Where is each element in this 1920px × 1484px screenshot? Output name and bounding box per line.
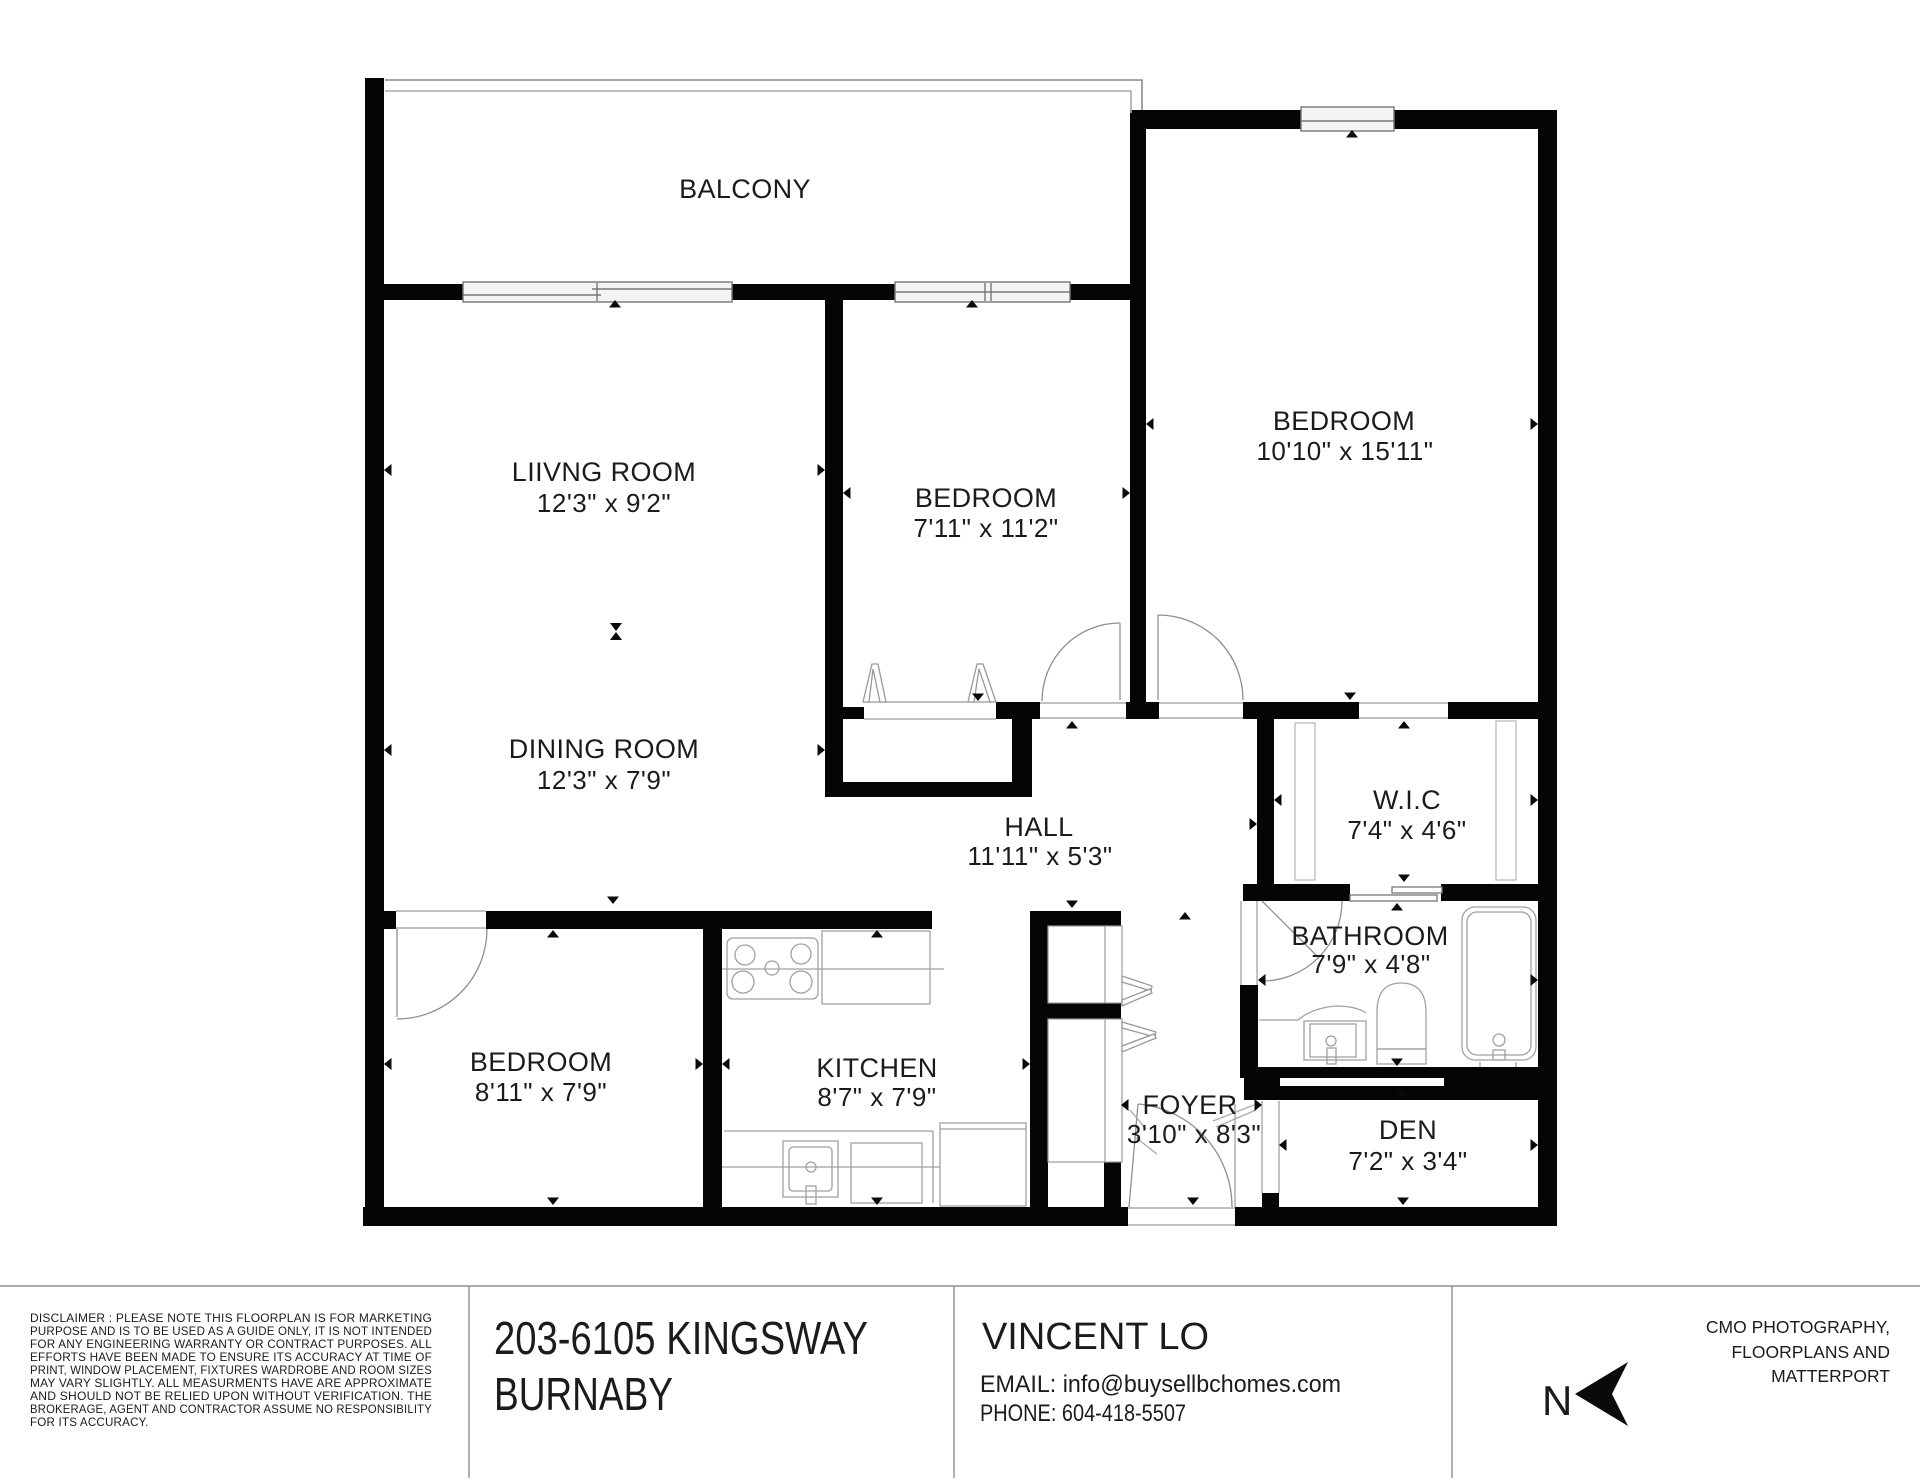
svg-text:HALL: HALL <box>1004 812 1073 842</box>
svg-text:LIIVNG ROOM: LIIVNG ROOM <box>512 457 696 487</box>
svg-text:3'10" x 8'3": 3'10" x 8'3" <box>1127 1119 1261 1149</box>
svg-text:W.I.C: W.I.C <box>1373 785 1441 815</box>
svg-text:CMO PHOTOGRAPHY,: CMO PHOTOGRAPHY, <box>1706 1317 1890 1337</box>
svg-text:11'11" x 5'3": 11'11" x 5'3" <box>967 841 1112 871</box>
svg-text:7'11" x 11'2": 7'11" x 11'2" <box>913 513 1058 543</box>
svg-text:10'10" x 15'11": 10'10" x 15'11" <box>1256 436 1433 466</box>
svg-text:BEDROOM: BEDROOM <box>1273 406 1415 436</box>
svg-text:EMAIL: info@buysellbchomes.co: EMAIL: info@buysellbchomes.com <box>980 1371 1341 1398</box>
svg-text:MATTERPORT: MATTERPORT <box>1771 1366 1890 1386</box>
svg-text:7'2" x 3'4": 7'2" x 3'4" <box>1348 1146 1467 1176</box>
svg-text:MAY VARY SLIGHTLY. ALL MEASUR: MAY VARY SLIGHTLY. ALL MEASURMENTS HAVE … <box>30 1377 432 1390</box>
svg-text:BROKERAGE, AGENT AND CONTRACTO: BROKERAGE, AGENT AND CONTRACTOR ASSUME N… <box>30 1403 432 1416</box>
svg-text:BALCONY: BALCONY <box>679 174 811 204</box>
svg-text:12'3" x 7'9": 12'3" x 7'9" <box>537 765 671 795</box>
svg-text:7'4" x 4'6": 7'4" x 4'6" <box>1347 815 1466 845</box>
svg-text:BEDROOM: BEDROOM <box>915 483 1057 513</box>
svg-text:PURPOSE AND IS TO BE USED AS A: PURPOSE AND IS TO BE USED AS A GUIDE ONL… <box>30 1325 432 1338</box>
svg-text:DINING ROOM: DINING ROOM <box>509 734 699 764</box>
svg-text:8'7" x 7'9": 8'7" x 7'9" <box>817 1082 936 1112</box>
svg-text:BURNABY: BURNABY <box>494 1368 673 1420</box>
svg-text:FOR ANY ENGINEERING WARRANTY O: FOR ANY ENGINEERING WARRANTY OR CONTRACT… <box>30 1338 432 1351</box>
svg-text:KITCHEN: KITCHEN <box>816 1053 937 1083</box>
svg-text:DEN: DEN <box>1379 1115 1437 1145</box>
svg-text:BEDROOM: BEDROOM <box>470 1047 612 1077</box>
svg-text:FOYER: FOYER <box>1142 1090 1237 1120</box>
svg-text:EFFORTS HAVE BEEN MADE TO ENSU: EFFORTS HAVE BEEN MADE TO ENSURE ITS ACC… <box>30 1351 432 1364</box>
svg-text:AND SHOULD NOT BE RELIED UPON: AND SHOULD NOT BE RELIED UPON WITHOUT VE… <box>30 1390 432 1403</box>
svg-text:PRINT, WINDOW PLACEMENT, FIXTU: PRINT, WINDOW PLACEMENT, FIXTURES WARDRO… <box>30 1364 432 1377</box>
svg-text:12'3" x 9'2": 12'3" x 9'2" <box>537 488 671 518</box>
svg-text:8'11" x 7'9": 8'11" x 7'9" <box>475 1077 607 1107</box>
svg-text:PHONE: 604-418-5507: PHONE: 604-418-5507 <box>980 1400 1186 1427</box>
svg-text:DISCLAIMER : PLEASE NOTE THIS: DISCLAIMER : PLEASE NOTE THIS FLOORPLAN … <box>30 1312 432 1325</box>
svg-text:FOR ITS ACCURACY.: FOR ITS ACCURACY. <box>30 1416 149 1429</box>
svg-text:203-6105 KINGSWAY: 203-6105 KINGSWAY <box>494 1312 868 1364</box>
svg-text:N: N <box>1542 1377 1572 1424</box>
svg-text:BATHROOM: BATHROOM <box>1291 921 1448 951</box>
svg-text:VINCENT LO: VINCENT LO <box>982 1316 1209 1358</box>
svg-text:7'9" x 4'8": 7'9" x 4'8" <box>1311 949 1430 979</box>
svg-text:FLOORPLANS AND: FLOORPLANS AND <box>1731 1342 1890 1362</box>
